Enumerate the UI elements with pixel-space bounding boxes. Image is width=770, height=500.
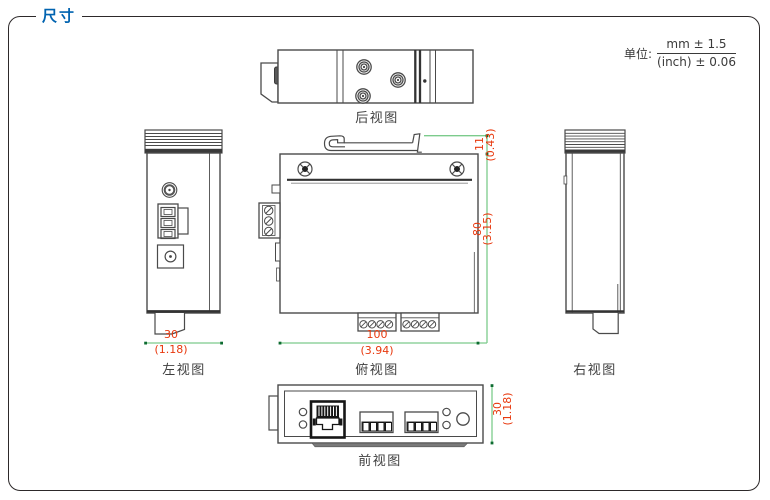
front-height-inch: (1.18) <box>502 392 514 425</box>
screw-hole <box>356 89 370 103</box>
power-jack <box>158 245 184 268</box>
mounting-screw <box>450 162 464 176</box>
terminal-block-4pin <box>360 412 393 433</box>
vent-cap <box>145 149 222 153</box>
side-notch <box>564 176 567 184</box>
unit-inch-tolerance: (inch) ± 0.06 <box>657 54 736 69</box>
right-body <box>566 153 624 313</box>
screw-hole <box>391 73 405 87</box>
top-depth-inch: (3.15) <box>482 212 494 245</box>
terminal-block-4pin <box>405 412 438 433</box>
din-clip-end <box>269 396 278 430</box>
top-width-inch: (3.94) <box>360 345 393 357</box>
left-width-mm: 30 <box>164 329 178 341</box>
top-view-label: 俯视图 <box>355 359 399 378</box>
top-body <box>280 154 478 313</box>
unit-tolerance: mm ± 1.5 (inch) ± 0.06 <box>657 37 736 69</box>
dimension-drawing <box>0 0 770 500</box>
left-view-drawing <box>145 130 222 334</box>
right-view-drawing <box>564 130 625 334</box>
front-view-label: 前视图 <box>358 450 402 469</box>
page-title: 尺寸 <box>36 7 82 26</box>
mounting-screw <box>298 162 312 176</box>
left-view-label: 左视图 <box>162 359 206 378</box>
unit-note: 单位: mm ± 1.5 (inch) ± 0.06 <box>624 37 736 69</box>
din-clip-tab <box>593 313 618 334</box>
top-clip-inch: (0.43) <box>485 128 497 161</box>
right-view-label: 右视图 <box>573 359 617 378</box>
rear-view-label: 后视图 <box>355 107 399 126</box>
unit-label: 单位: <box>624 45 652 62</box>
base-shadow <box>312 443 468 447</box>
rj45-port <box>311 402 345 438</box>
terminal-block-3pin <box>158 204 188 239</box>
left-width-inch: (1.18) <box>154 344 187 356</box>
din-rail-clip <box>325 134 422 152</box>
rear-pin-hole <box>423 79 426 82</box>
terminal-block-3pin-side <box>259 203 280 238</box>
terminal-block-4pin <box>401 313 439 331</box>
unit-mm-tolerance: mm ± 1.5 <box>657 37 736 54</box>
side-tab <box>276 243 281 261</box>
front-view-drawing <box>269 385 483 447</box>
grounding-screw <box>162 183 177 198</box>
side-tab-small <box>277 268 280 281</box>
rear-view-drawing <box>261 50 473 103</box>
screw-hole <box>357 60 371 74</box>
top-view-drawing <box>259 134 478 331</box>
top-width-mm: 100 <box>367 329 388 341</box>
side-notch <box>272 185 280 193</box>
rear-body <box>278 50 473 103</box>
